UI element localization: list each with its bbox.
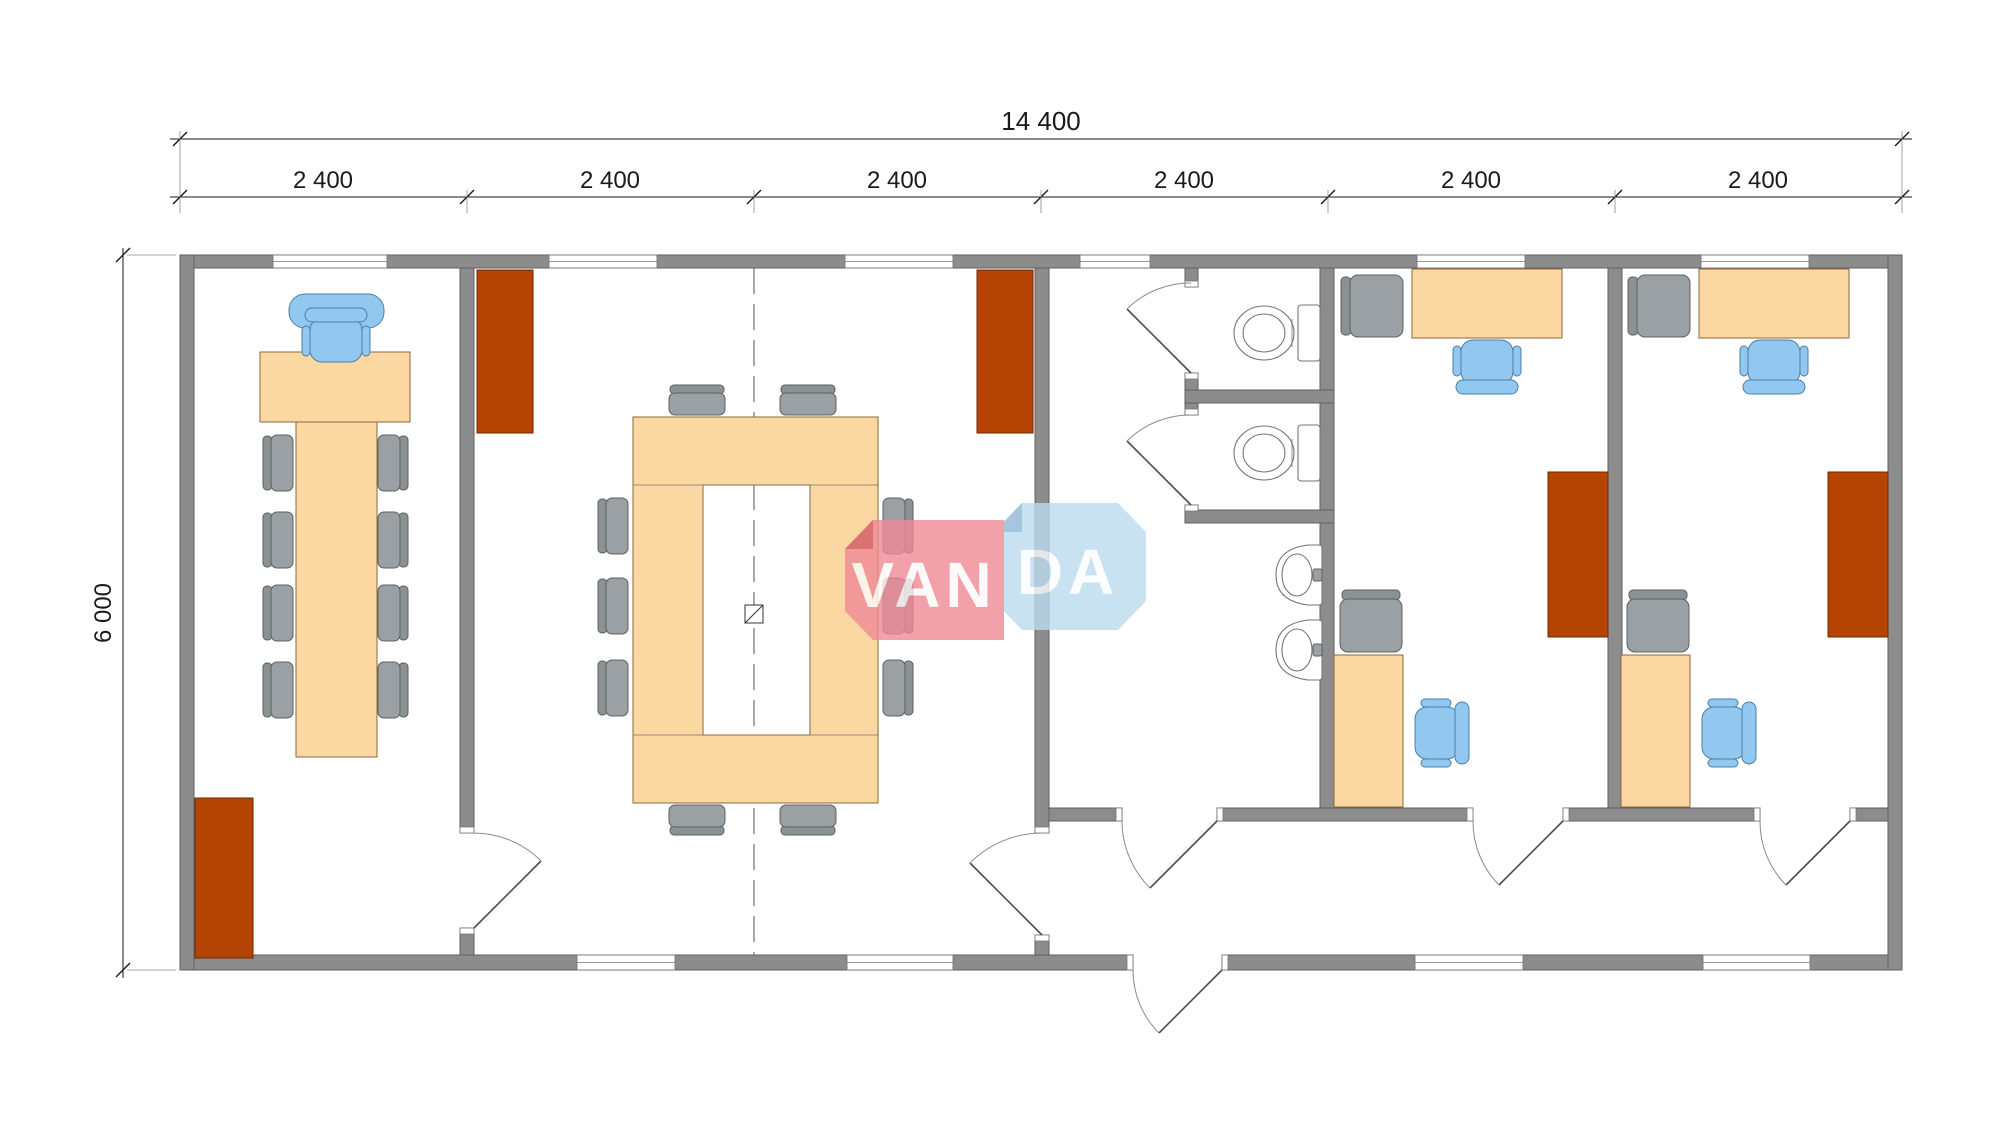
dimension-module-label-5: 2 400 bbox=[1441, 167, 1501, 194]
chair bbox=[598, 578, 628, 634]
window bbox=[1415, 955, 1523, 970]
conference-long-table bbox=[296, 422, 377, 757]
dimension-module-label-4: 2 400 bbox=[1154, 167, 1214, 194]
wall-wc-partition-2 bbox=[1185, 510, 1334, 523]
armchair bbox=[1628, 275, 1690, 337]
wardrobe bbox=[1828, 472, 1888, 637]
wall-corridor-segment-3 bbox=[1563, 808, 1760, 821]
chair bbox=[378, 662, 408, 718]
dimension-total-label: 14 400 bbox=[1001, 106, 1081, 136]
executive-chair bbox=[302, 308, 370, 362]
dimension-module-label-2: 2 400 bbox=[580, 167, 640, 194]
floor-plan-drawing: 14 400 2 400 2 400 2 400 2 400 2 400 2 4… bbox=[0, 0, 2000, 1147]
window bbox=[1703, 955, 1810, 970]
radiator bbox=[977, 270, 1033, 433]
window bbox=[1080, 255, 1150, 268]
wall-office1-office2 bbox=[1608, 268, 1622, 808]
chair bbox=[780, 385, 836, 415]
radiator bbox=[477, 270, 533, 433]
floor-plan-canvas: 14 400 2 400 2 400 2 400 2 400 2 400 2 4… bbox=[0, 0, 2000, 1147]
window bbox=[845, 255, 953, 268]
chair bbox=[598, 498, 628, 554]
chair bbox=[263, 662, 293, 718]
wall-exterior-top bbox=[180, 255, 1902, 268]
wardrobe bbox=[1548, 472, 1608, 637]
chair bbox=[669, 805, 725, 835]
chair bbox=[263, 585, 293, 641]
watermark-text-left: VAN bbox=[851, 549, 996, 621]
task-chair bbox=[1702, 699, 1756, 767]
dimension-depth-label: 6 000 bbox=[90, 583, 117, 643]
wall-exterior-left bbox=[180, 255, 194, 970]
chair bbox=[263, 435, 293, 491]
radiator bbox=[195, 798, 253, 958]
wall-wc-office1 bbox=[1320, 268, 1334, 808]
dimension-module-label-3: 2 400 bbox=[867, 167, 927, 194]
wall-exterior-right bbox=[1888, 255, 1902, 970]
task-chair bbox=[1415, 699, 1469, 767]
desk bbox=[1699, 269, 1849, 338]
armchair bbox=[1341, 275, 1403, 337]
task-chair bbox=[1453, 340, 1521, 394]
window bbox=[1417, 255, 1525, 268]
chair bbox=[669, 385, 725, 415]
window bbox=[577, 955, 675, 970]
wall-corridor-segment-2 bbox=[1217, 808, 1473, 821]
chair bbox=[598, 660, 628, 716]
dimension-module-label-6: 2 400 bbox=[1728, 167, 1788, 194]
chair bbox=[378, 512, 408, 568]
wall-room1-room2 bbox=[460, 268, 474, 833]
watermark-text-right: DA bbox=[1017, 536, 1119, 608]
chair bbox=[883, 660, 913, 716]
window bbox=[273, 255, 387, 268]
armchair bbox=[1627, 590, 1689, 652]
desk bbox=[1621, 655, 1690, 807]
dimension-module-label-1: 2 400 bbox=[293, 167, 353, 194]
window bbox=[1701, 255, 1809, 268]
chair bbox=[378, 435, 408, 491]
window bbox=[847, 955, 953, 970]
wall-wc-partition-1 bbox=[1185, 390, 1334, 403]
chair bbox=[263, 512, 293, 568]
armchair bbox=[1340, 590, 1402, 652]
desk bbox=[1412, 269, 1562, 338]
window bbox=[549, 255, 657, 268]
chair bbox=[378, 585, 408, 641]
task-chair bbox=[1740, 340, 1808, 394]
watermark: VAN DA bbox=[845, 503, 1146, 640]
wall-corridor-segment-1 bbox=[1049, 808, 1122, 821]
toilet bbox=[1234, 425, 1320, 481]
toilet bbox=[1234, 305, 1320, 361]
chair bbox=[780, 805, 836, 835]
desk bbox=[1334, 655, 1403, 807]
